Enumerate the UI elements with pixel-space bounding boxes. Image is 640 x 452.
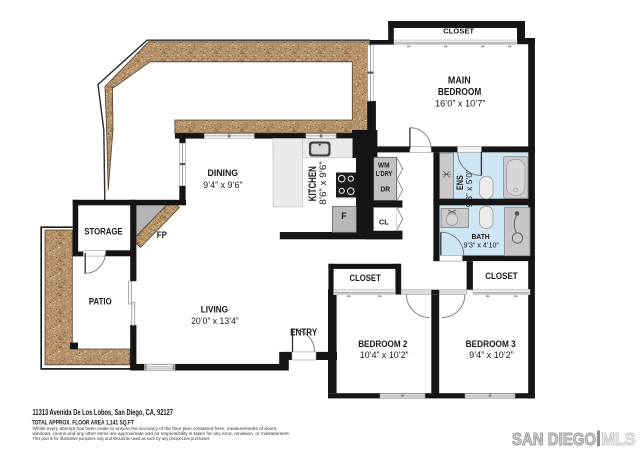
svg-text:WM: WM bbox=[378, 162, 390, 169]
svg-text:16’0” x 10’7”: 16’0” x 10’7” bbox=[435, 97, 485, 108]
svg-text:BEDROOM 2: BEDROOM 2 bbox=[358, 339, 407, 349]
svg-text:CLOSET: CLOSET bbox=[485, 271, 518, 281]
svg-text:CLOSET: CLOSET bbox=[443, 27, 474, 36]
svg-text:10’4” x 10’2”: 10’4” x 10’2” bbox=[360, 350, 409, 360]
svg-text:STORAGE: STORAGE bbox=[84, 227, 122, 237]
svg-text:KITCHEN: KITCHEN bbox=[307, 166, 319, 201]
svg-text:This plan is for illustrative: This plan is for illustrative purposes o… bbox=[33, 436, 211, 441]
svg-text:11313 Avenida De Los Lobos, Sa: 11313 Avenida De Los Lobos, San Diego, C… bbox=[33, 408, 174, 417]
svg-text:MLS: MLS bbox=[602, 429, 636, 449]
svg-text:SAN DIEGO: SAN DIEGO bbox=[512, 429, 596, 449]
svg-text:F: F bbox=[341, 211, 347, 221]
svg-text:9’4” x 10’2”: 9’4” x 10’2” bbox=[469, 350, 514, 360]
svg-text:9’3” x 5’0”: 9’3” x 5’0” bbox=[465, 170, 474, 207]
svg-text:BEDROOM: BEDROOM bbox=[438, 87, 481, 98]
svg-text:20’0” x 13’4”: 20’0” x 13’4” bbox=[191, 315, 239, 326]
svg-text:DR: DR bbox=[381, 187, 391, 194]
svg-text:9’3” x 4’10”: 9’3” x 4’10” bbox=[464, 240, 500, 249]
svg-text:MAIN: MAIN bbox=[448, 75, 471, 86]
svg-text:ENTRY: ENTRY bbox=[290, 328, 317, 339]
svg-text:DINING: DINING bbox=[208, 168, 239, 179]
svg-text:8’6” x 9’6”: 8’6” x 9’6” bbox=[318, 161, 328, 204]
svg-text:9’4” x 9’6”: 9’4” x 9’6” bbox=[203, 180, 242, 190]
svg-text:CL: CL bbox=[379, 217, 389, 226]
svg-text:ENS: ENS bbox=[455, 175, 465, 190]
svg-text:FP: FP bbox=[157, 229, 167, 240]
svg-text:LIVING: LIVING bbox=[201, 304, 228, 314]
svg-text:CLOSET: CLOSET bbox=[350, 273, 382, 283]
svg-text:BEDROOM 3: BEDROOM 3 bbox=[466, 339, 516, 349]
svg-text:PATIO: PATIO bbox=[89, 296, 112, 307]
svg-text:L’DRY: L’DRY bbox=[376, 171, 393, 178]
